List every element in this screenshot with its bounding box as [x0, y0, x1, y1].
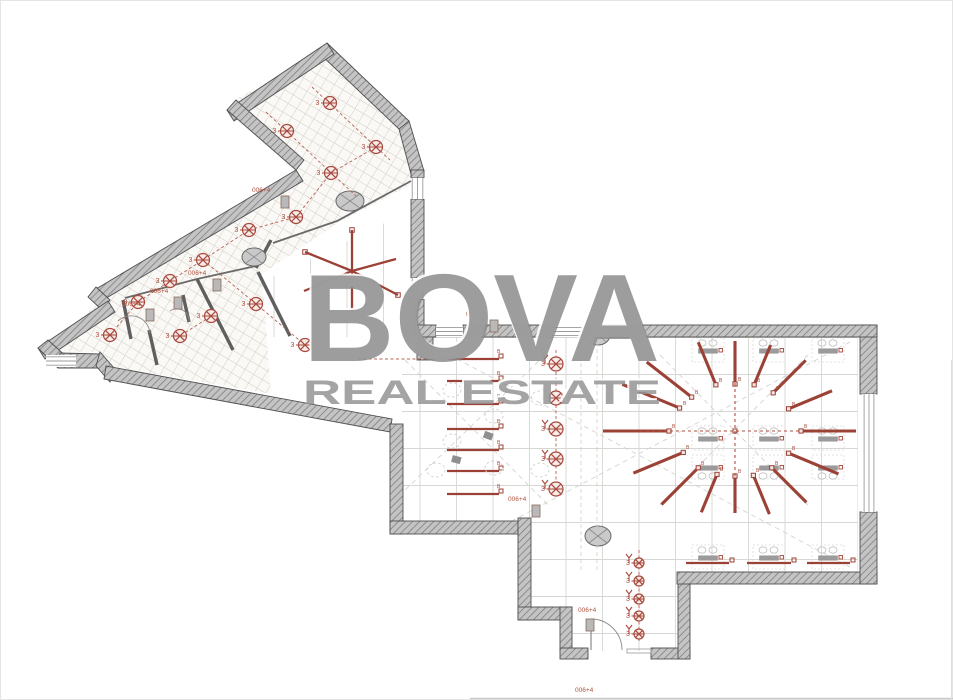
svg-text:3: 3 — [166, 333, 170, 340]
svg-text:3: 3 — [626, 631, 630, 638]
svg-text:3: 3 — [96, 332, 100, 339]
svg-text:3: 3 — [626, 560, 630, 567]
svg-text:BOVA: BOVA — [303, 250, 660, 388]
svg-text:3: 3 — [626, 578, 630, 585]
svg-text:REAL ESTATE: REAL ESTATE — [303, 374, 661, 412]
svg-text:006+4: 006+4 — [122, 301, 141, 308]
svg-text:3: 3 — [189, 257, 193, 264]
svg-text:3: 3 — [235, 227, 239, 234]
svg-text:006+4: 006+4 — [150, 288, 169, 295]
svg-text:3: 3 — [541, 456, 545, 463]
svg-text:006+4: 006+4 — [252, 187, 271, 194]
svg-text:006+4: 006+4 — [188, 270, 207, 277]
svg-text:3: 3 — [273, 128, 277, 135]
svg-text:3: 3 — [541, 426, 545, 433]
svg-text:3: 3 — [316, 100, 320, 107]
svg-text:3: 3 — [362, 144, 366, 151]
svg-text:006+4: 006+4 — [575, 687, 594, 694]
svg-text:3: 3 — [242, 301, 246, 308]
svg-text:3: 3 — [626, 613, 630, 620]
svg-text:006+4: 006+4 — [508, 496, 527, 503]
svg-text:3: 3 — [541, 486, 545, 493]
svg-text:3: 3 — [282, 214, 286, 221]
svg-text:3: 3 — [291, 342, 295, 349]
svg-text:3: 3 — [156, 278, 160, 285]
svg-text:3: 3 — [626, 596, 630, 603]
svg-text:006+4: 006+4 — [578, 607, 597, 614]
svg-text:3: 3 — [317, 170, 321, 177]
svg-text:3: 3 — [197, 313, 201, 320]
